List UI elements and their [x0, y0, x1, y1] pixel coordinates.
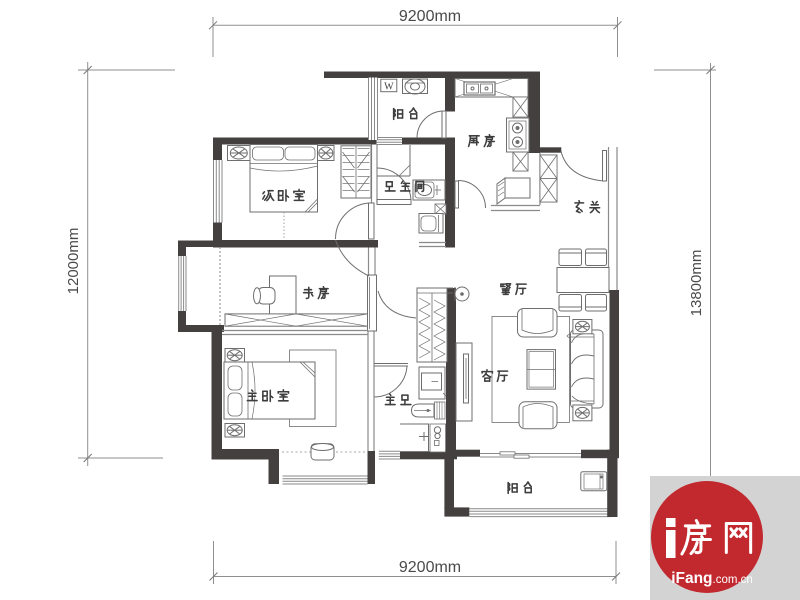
svg-text:13800mm: 13800mm	[688, 250, 705, 317]
svg-text:W: W	[384, 82, 394, 93]
svg-text:9200mm: 9200mm	[399, 8, 461, 25]
svg-text:12000mm: 12000mm	[65, 228, 82, 295]
svg-text:9200mm: 9200mm	[399, 559, 461, 576]
